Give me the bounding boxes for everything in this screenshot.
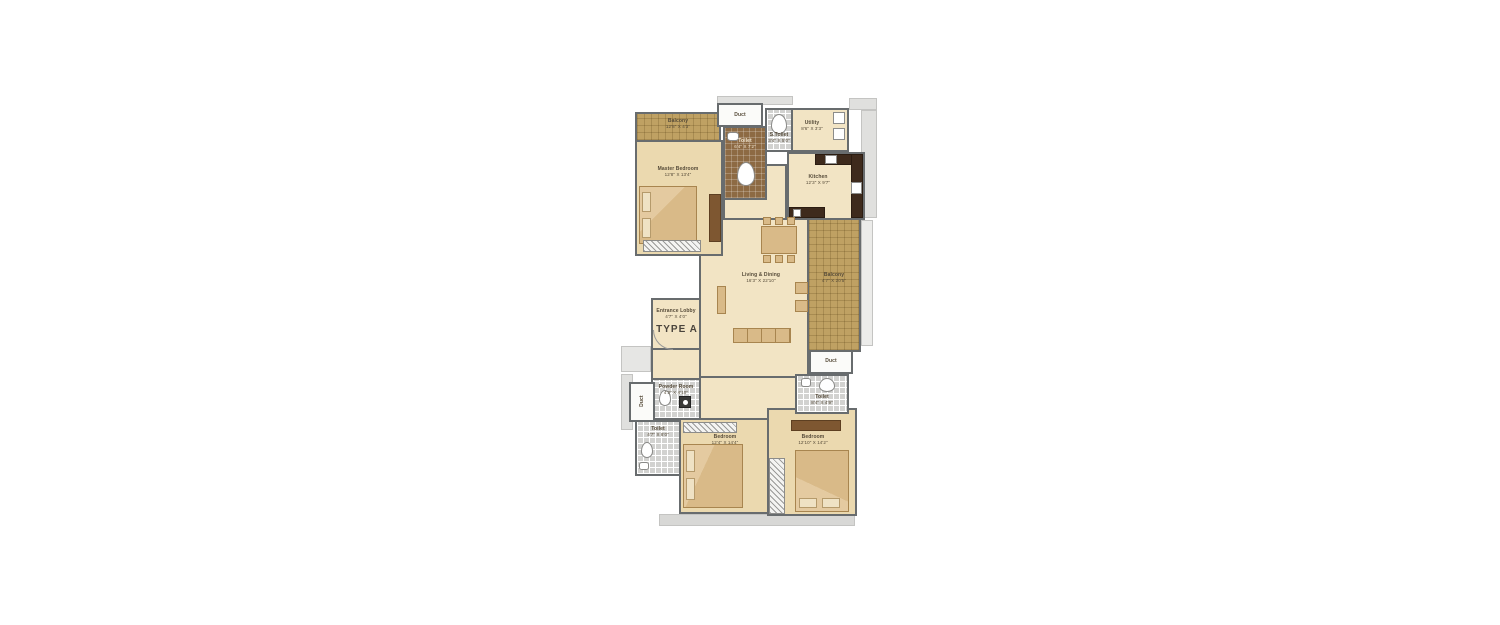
dining-chair <box>787 217 795 225</box>
dining-chair <box>775 255 783 263</box>
powder-room-wc <box>659 390 671 406</box>
utility-appliance <box>833 112 845 124</box>
bedroom-left-wardrobe <box>683 422 737 433</box>
toilet-master-sink <box>727 132 739 141</box>
deck-entrance-steps <box>621 346 651 372</box>
room-balcony-top <box>635 112 721 142</box>
bedroom-right-pillow <box>822 498 840 508</box>
kitchen-sink <box>825 155 837 164</box>
deck-right-balcony <box>861 220 873 346</box>
bedroom-right-wardrobe <box>791 420 841 431</box>
toilet-right-sink <box>801 378 811 387</box>
armchair <box>795 300 808 312</box>
room-duct-right <box>809 350 853 374</box>
dining-chair <box>775 217 783 225</box>
bedroom-left-pillow <box>686 478 695 500</box>
dining-chair <box>787 255 795 263</box>
master-window-grill <box>643 240 701 252</box>
master-wardrobe <box>709 194 721 242</box>
s-toilet-wc <box>771 114 787 134</box>
toilet-master-wc <box>737 162 755 186</box>
powder-room-shaft <box>679 396 691 408</box>
dining-chair <box>763 217 771 225</box>
bedroom-right-closet <box>769 458 785 514</box>
utility-appliance <box>833 128 845 140</box>
dining-table <box>761 226 797 254</box>
kitchen-counter-box <box>793 209 801 217</box>
master-bed-pillow <box>642 218 651 238</box>
toilet-left-sink <box>639 462 649 470</box>
kitchen-stove <box>851 182 862 194</box>
master-bed-pillow <box>642 192 651 212</box>
bedroom-right-pillow <box>799 498 817 508</box>
armchair <box>795 282 808 294</box>
room-balcony-right <box>807 218 861 352</box>
bedroom-left-pillow <box>686 450 695 472</box>
tv-unit <box>717 286 726 314</box>
dining-chair <box>763 255 771 263</box>
room-duct-top <box>717 103 763 127</box>
toilet-left-wc <box>641 442 653 458</box>
floor-plan: Balcony 12'8" X 4'3" Master Bedroom 12'8… <box>621 90 879 536</box>
room-duct-left <box>629 382 655 422</box>
deck-top-right <box>849 98 877 110</box>
toilet-right-wc <box>819 378 835 392</box>
sofa <box>733 328 791 343</box>
